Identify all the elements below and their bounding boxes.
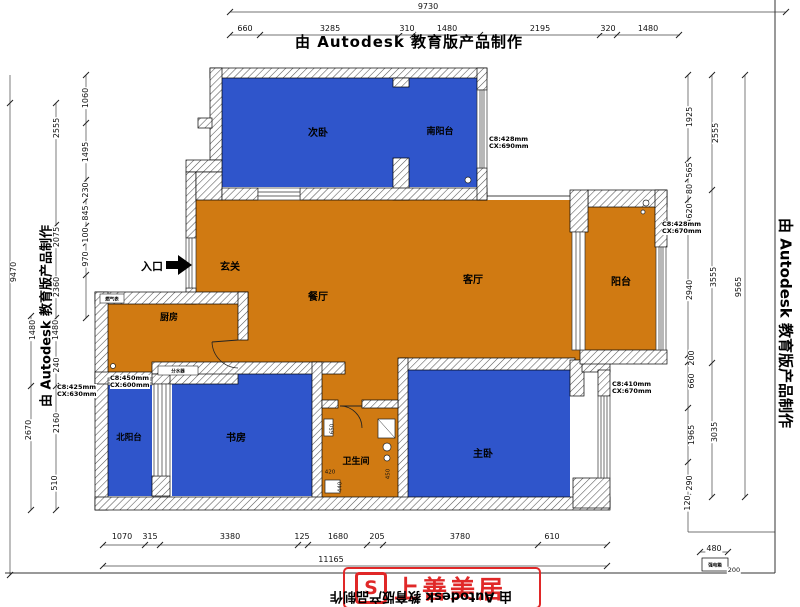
- dim-label: 650: [330, 423, 336, 436]
- dim-label: 2670: [25, 419, 33, 441]
- power-box-label: 强电箱: [708, 562, 722, 569]
- south-balcony-drain: [465, 177, 471, 183]
- balcony-drain: [643, 200, 649, 206]
- room-kitchen-label: 厨房: [160, 311, 178, 323]
- window-note: C8:428mm CX:690mm: [489, 136, 529, 150]
- window-master-right: [598, 396, 610, 478]
- window-second-bedroom: [258, 188, 300, 200]
- room-living-label: 客厅: [462, 273, 483, 286]
- dim-label: 1480: [637, 25, 659, 33]
- room-bathroom-label: 卫生间: [342, 455, 369, 467]
- dim-label: 1680: [327, 533, 349, 541]
- dim-label: 100: [82, 226, 90, 243]
- room-balcony-label: 阳台: [611, 275, 631, 288]
- dim-label: 2555: [712, 122, 720, 144]
- balcony-drain-2: [641, 210, 645, 214]
- dim-label: 845: [82, 204, 90, 221]
- dim-label: 3780: [449, 533, 471, 541]
- dim-label: 200: [727, 567, 741, 574]
- room-south-balcony-label: 南阳台: [426, 125, 453, 137]
- dim-label: 120: [684, 494, 692, 511]
- dim-label: 420: [324, 470, 337, 476]
- window-note: C8:428mm CX:670mm: [662, 221, 702, 235]
- watermark-top: 由 Autodesk 教育版产品制作: [295, 31, 523, 52]
- room-master-bedroom-label: 主卧: [473, 447, 493, 460]
- dim-label: 510: [51, 474, 59, 491]
- dim-label: 660: [688, 372, 696, 389]
- dim-label: 3555: [710, 266, 718, 288]
- dim-label: 3380: [219, 533, 241, 541]
- dim-label: 2195: [529, 25, 551, 33]
- dim-label: 620: [686, 202, 694, 219]
- window-south-balcony: [477, 90, 487, 168]
- room-dining-label: 餐厅: [307, 290, 328, 303]
- dim-label: 1925: [686, 106, 694, 128]
- dim-label: 200: [688, 349, 696, 366]
- dim-label: 290: [686, 474, 694, 491]
- entrance-label: 入口: [141, 260, 163, 273]
- bath-drain: [383, 443, 391, 451]
- dim-label: 125: [293, 533, 310, 541]
- dim-label: 2940: [686, 279, 694, 301]
- dim-label: 80: [686, 183, 694, 195]
- room-second-bedroom-label: 次卧: [308, 126, 328, 139]
- dim-label: 440: [338, 481, 344, 494]
- room-master-bedroom: [408, 368, 570, 497]
- dim-label: 480: [705, 545, 722, 553]
- dim-label: 2555: [53, 117, 61, 139]
- dim-label: 450: [386, 468, 392, 481]
- dim-label: 11165: [317, 556, 344, 564]
- watermark-right: 由 Autodesk 教育版产品制作: [776, 218, 797, 428]
- dim-label: 2160: [53, 412, 61, 434]
- floorplan-sheet: 次卧 南阳台 玄关 餐厅 客厅 阳台 厨房 北阳台 书房 卫生间 主卧 燃气表 …: [0, 0, 800, 607]
- watermark-bottom: 由 Autodesk 教育版产品制作: [330, 589, 512, 607]
- bath-drain-2: [384, 455, 390, 461]
- dim-label: 660: [236, 25, 253, 33]
- dim-label: 315: [141, 533, 158, 541]
- dim-label: 9730: [417, 3, 439, 11]
- gas-meter-label: 燃气表: [105, 296, 119, 303]
- dim-label: 1070: [111, 533, 133, 541]
- dim-label: 1495: [82, 141, 90, 163]
- dim-label: 320: [599, 25, 616, 33]
- window-note: C8:425mm CX:630mm: [57, 384, 97, 398]
- room-study-label: 书房: [226, 431, 246, 444]
- dim-label: 970: [82, 250, 90, 267]
- room-north-balcony-label: 北阳台: [116, 432, 142, 443]
- dim-label: 9565: [735, 276, 743, 298]
- window-note: C8:410mm CX:670mm: [612, 381, 652, 395]
- dim-label: 610: [543, 533, 560, 541]
- dim-label: 9470: [10, 261, 18, 283]
- kitchen-drain: [111, 364, 116, 369]
- dim-label: 1965: [688, 424, 696, 446]
- dim-label: 3035: [711, 421, 719, 443]
- window-living-balcony: [572, 232, 585, 350]
- window-balcony-right: [656, 247, 666, 350]
- dim-label: 1060: [82, 87, 90, 109]
- room-hallway-label: 玄关: [220, 260, 240, 273]
- watermark-left: 由 Autodesk 教育版产品制作: [36, 225, 55, 407]
- floorplan-drawing: 次卧 南阳台 玄关 餐厅 客厅 阳台 厨房 北阳台 书房 卫生间 主卧 燃气表 …: [0, 0, 800, 607]
- window-study-left: [154, 384, 170, 476]
- dim-label: 205: [368, 533, 385, 541]
- window-note: C8:450mm CX:600mm: [110, 375, 150, 389]
- dim-label: 230: [82, 181, 90, 198]
- dim-label: 565: [686, 161, 694, 178]
- manifold-label: 分水器: [171, 368, 185, 375]
- room-living-dining: [196, 200, 588, 362]
